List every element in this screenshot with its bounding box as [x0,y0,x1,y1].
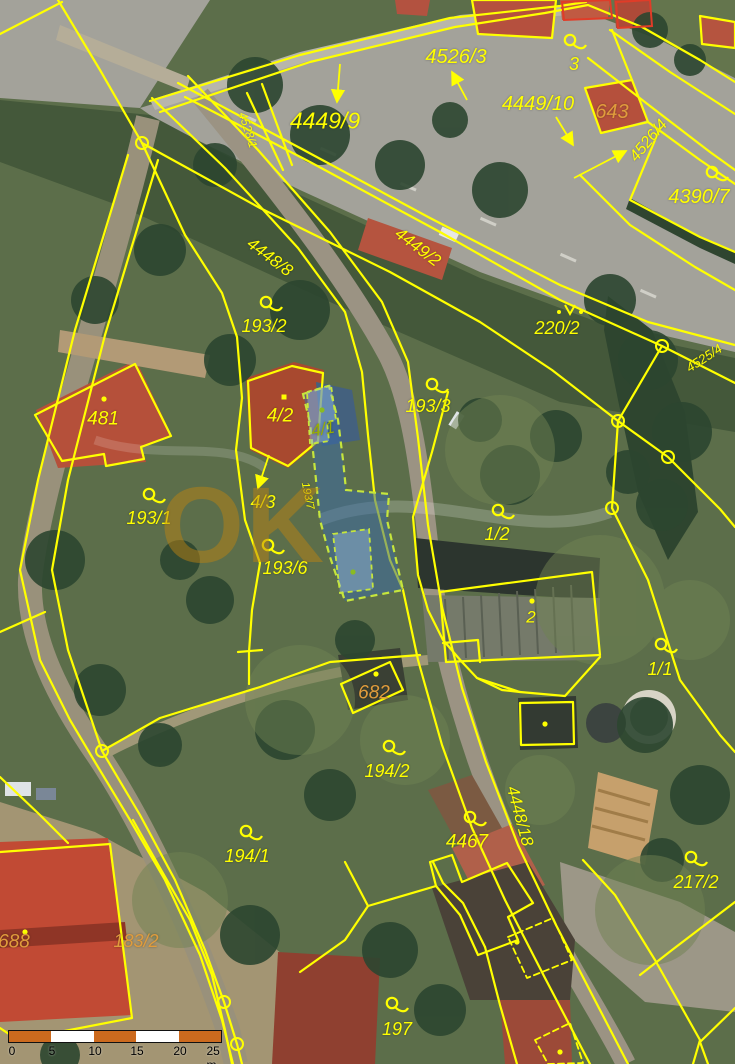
parcel-label-4449-9: 4449/9 [290,110,360,133]
parcel-label-1-1: 1/1 [647,660,672,678]
parcel-label-193-6: 193/6 [262,559,307,577]
parcel-label-481: 481 [87,410,119,429]
parcel-label-183-2: 183/2 [113,932,158,950]
building-dot [542,721,547,726]
parcel-label-193-1: 193/1 [126,509,171,527]
building-dot [101,396,106,401]
building-dot [514,939,519,944]
highlight-building-dot [319,407,324,412]
parcel-label-4467: 4467 [446,833,488,852]
parcel-label-220-2: 220/2 [534,319,579,337]
building-dot [373,671,378,676]
parcel-label-4390-7: 4390/7 [668,187,729,207]
scale-tick: 10 [88,1044,101,1058]
cadastral-map-viewport[interactable]: 4526/334449/106434526/44390/74449/94528/… [0,0,735,1064]
scale-bar-segment [51,1031,93,1042]
scale-bar-segments [8,1030,222,1043]
scale-tick: 20 [173,1044,186,1058]
parcel-label-4526-3: 4526/3 [425,47,486,67]
scale-bar-segment [136,1031,178,1042]
parcel-label-197: 197 [382,1020,412,1038]
parcel-label-643: 643 [595,102,628,122]
scale-bar-ticks: 0 5 10 15 20 25 m [8,1044,232,1060]
scale-bar: 0 5 10 15 20 25 m [8,1030,232,1060]
parcel-label-4449-10: 4449/10 [502,94,574,114]
building-dot [557,1049,562,1054]
parcel-label-194-1: 194/1 [224,847,269,865]
parcel-label-217-2: 217/2 [673,873,718,891]
parcel-label-193-2: 193/2 [241,317,286,335]
parcel-label-1-2: 1/2 [484,525,509,543]
scale-tick: 5 [49,1044,56,1058]
scale-tick: 25 m [207,1044,224,1064]
building-square-dot [282,395,287,400]
parcel-label-2: 2 [526,609,535,626]
scale-tick: 15 [130,1044,143,1058]
scale-bar-segment [94,1031,136,1042]
highlighted-building-part-south [333,529,373,593]
parcel-label-682: 682 [358,684,390,703]
scale-tick: 0 [9,1044,16,1058]
parcel-label-4-3: 4/3 [250,493,275,511]
parcel-label-3: 3 [569,55,579,73]
parcel-label-4-2: 4/2 [267,407,293,426]
parcel-label-193-3: 193/3 [405,397,450,415]
scale-bar-segment [9,1031,51,1042]
parcel-label-194-2: 194/2 [364,762,409,780]
highlight-building-dot [350,569,355,574]
building-dot [529,598,534,603]
scale-bar-segment [179,1031,221,1042]
parcel-label-688: 688 [0,933,30,952]
parcel-label-4-1: 4/1 [310,419,336,440]
